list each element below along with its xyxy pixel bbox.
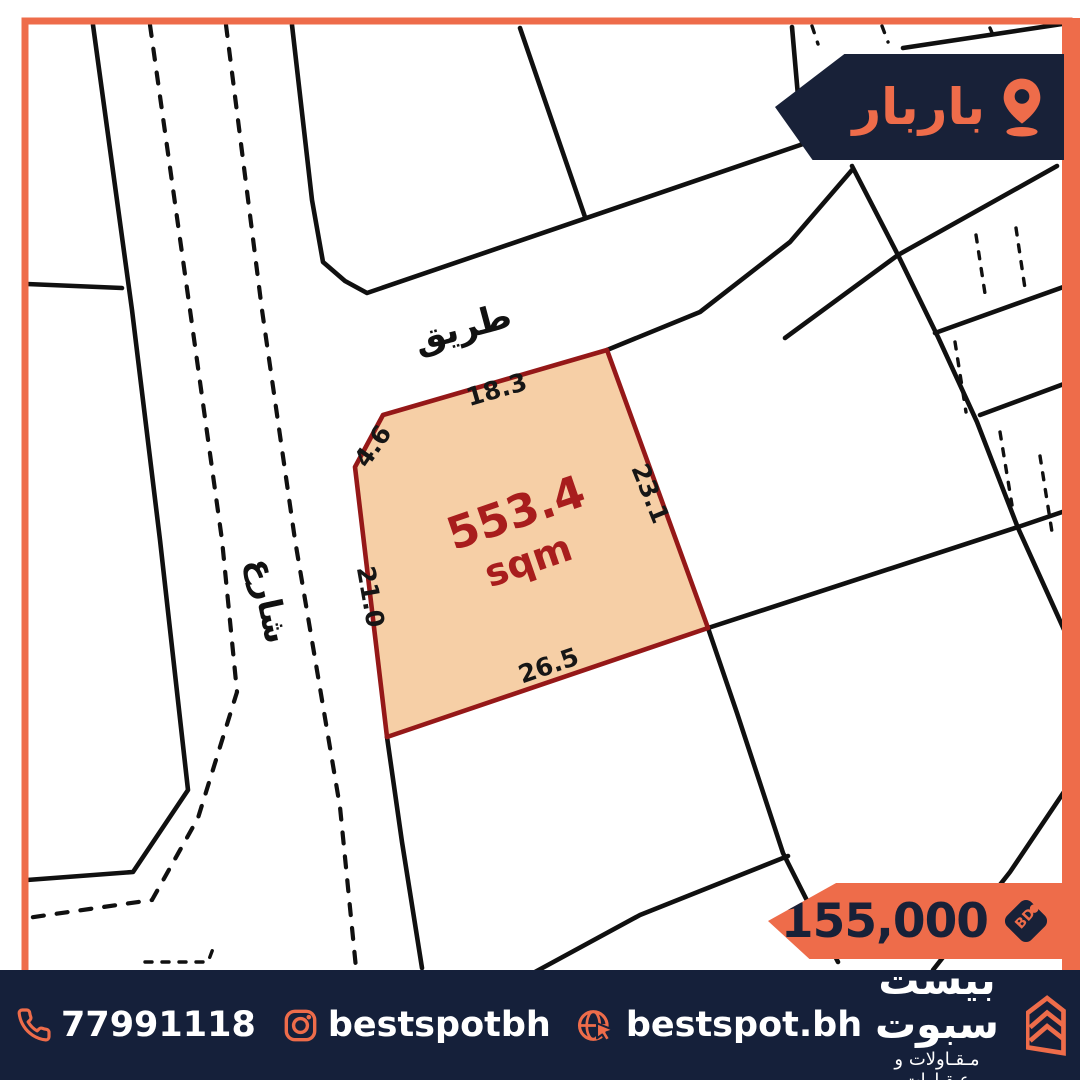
road-label-left: شارع	[241, 554, 297, 647]
parcel-dashed-mark	[812, 26, 818, 44]
instagram-icon	[282, 1007, 319, 1044]
brand-name: بيست سبوت	[862, 959, 1012, 1045]
road-label-top: طريق	[410, 296, 516, 360]
parcel-line	[535, 856, 788, 972]
road-edge-east-bend	[292, 25, 806, 293]
road-center-dashed-1	[27, 25, 237, 918]
brand-block: بيست سبوت مـقـاولات و عـقـارات	[862, 959, 1012, 1080]
phone-icon	[16, 1007, 52, 1043]
website-url: bestspot.bh	[626, 1008, 862, 1043]
parcel-line	[935, 281, 1080, 333]
price-tag-icon: BD	[996, 891, 1056, 951]
location-pin-icon	[1000, 76, 1044, 138]
parcel-dashed-mark	[1016, 228, 1026, 295]
globe-cursor-icon	[577, 1007, 617, 1044]
website-contact[interactable]: bestspot.bh	[577, 1007, 862, 1044]
brand-tagline: مـقـاولات و عـقـارات	[862, 1049, 1012, 1080]
brand-logo-icon	[1026, 974, 1068, 1076]
road-edge-west	[27, 25, 188, 880]
parcel-line	[785, 166, 1057, 338]
parcel-dashed-mark	[145, 946, 214, 962]
parcel-line	[903, 24, 1062, 48]
instagram-handle: bestspotbh	[328, 1008, 551, 1043]
parcel-line	[387, 737, 422, 968]
phone-number: 77991118	[61, 1008, 256, 1043]
block-edge-steep	[852, 166, 1066, 634]
parcel-line	[27, 284, 122, 288]
parcel-line	[708, 506, 1080, 628]
parcel-dashed-mark	[976, 235, 986, 300]
phone-contact[interactable]: 77991118	[16, 1007, 256, 1043]
instagram-contact[interactable]: bestspotbh	[282, 1007, 551, 1044]
location-label: باربار	[852, 82, 985, 132]
road-center-dashed-2	[226, 25, 356, 968]
footer-bar: 77991118 bestspotbh bestspot.bh بيست سبو…	[0, 970, 1080, 1080]
frame-right-strip	[1062, 18, 1080, 970]
price-amount: 155,000	[781, 898, 988, 945]
parcel-dashed-mark	[882, 26, 888, 42]
parcel-line	[520, 28, 585, 217]
real-estate-listing-graphic: 18.3 4.6 23.1 21.0 26.5 553.4 sqm طريق ش…	[0, 0, 1080, 1080]
